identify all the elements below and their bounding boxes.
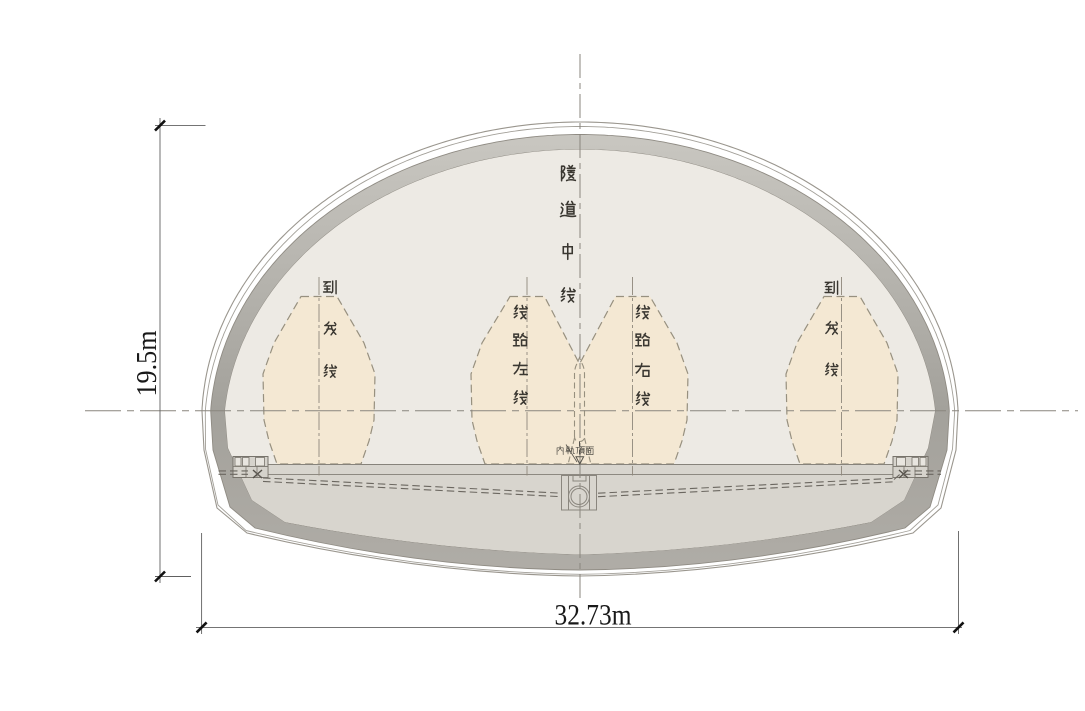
svg-text:19.5m: 19.5m [131, 330, 163, 396]
svg-text:32.73m: 32.73m [555, 599, 632, 632]
